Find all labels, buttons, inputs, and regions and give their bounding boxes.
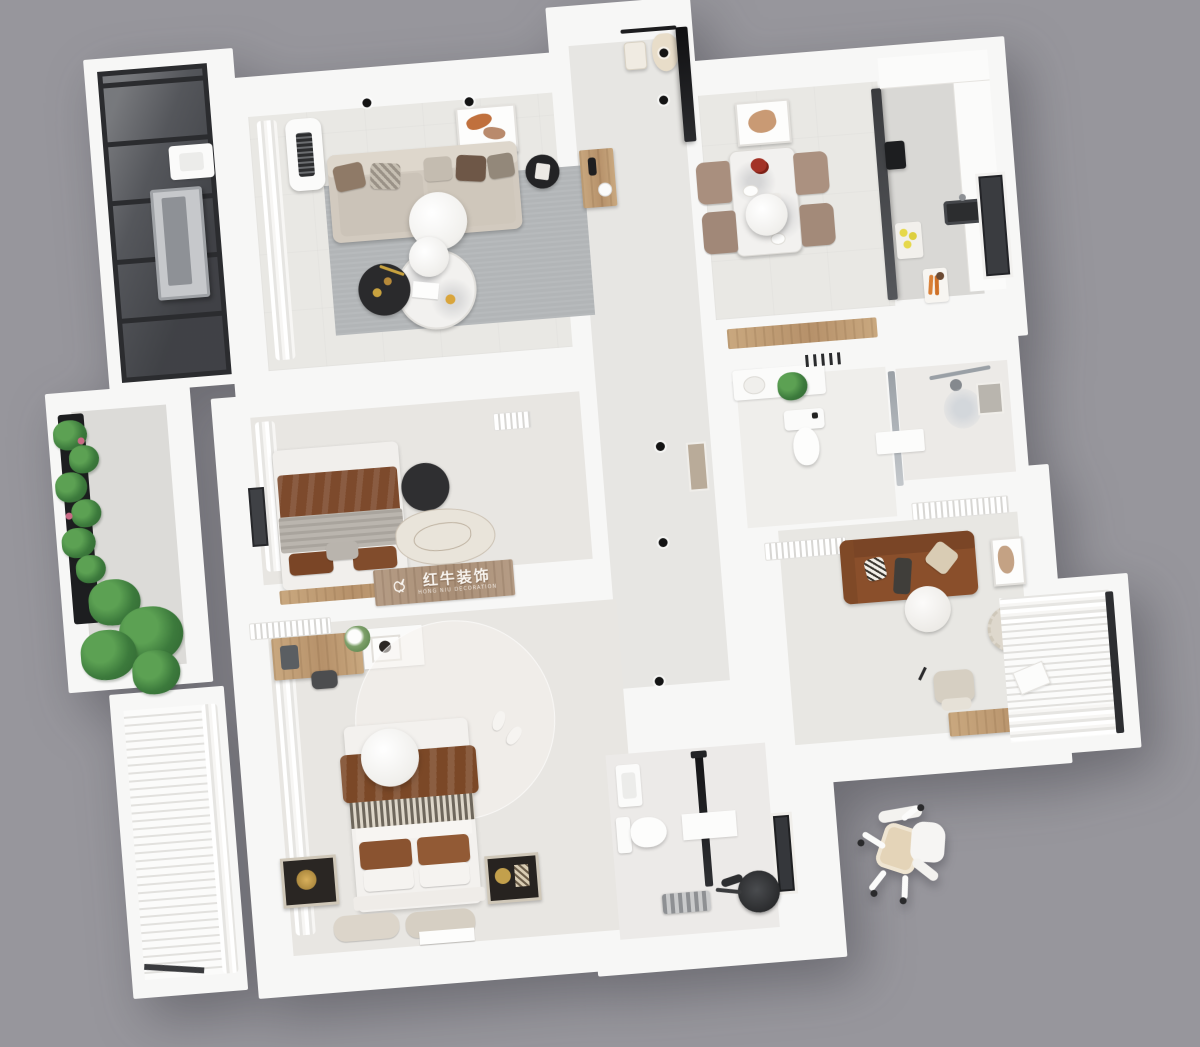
bath2-sink-basin [621,772,637,799]
bath2-mirror-panel [681,810,737,840]
desk-tablet [280,645,300,670]
art-gold-disc [296,869,318,891]
stray-chair-back [910,821,947,863]
black-table-decor2 [383,277,392,286]
stray-chair-leg [902,875,909,899]
dining-chair [799,202,836,247]
floor-cushion [333,911,401,942]
sofa-pillow-checker [370,163,401,190]
console-black-vase [588,157,597,176]
sofa-pillow-dark [455,155,486,182]
art-rug-line [412,520,472,553]
red-flowers [750,158,767,173]
study-throw [893,558,912,595]
lemon [899,228,908,237]
towel-basket [662,890,711,914]
kitchen-faucet [959,194,967,202]
chair-caster [857,838,866,847]
art-gold-dot [494,867,511,884]
bath2-sink [615,764,642,808]
kitchen-tray [895,221,924,259]
living-wall-art-shape2 [482,126,506,141]
scene-root: { "scene": { "type": "3d-apartment-floor… [0,0,1200,1000]
shower-column-head [690,750,707,758]
master-pillow-brown [417,834,471,866]
shower-step-panel [875,429,925,455]
stray-chair-leg [868,869,888,892]
toilet-button [812,412,818,418]
master-pillow-white [419,862,471,888]
master-desk-chair [311,670,338,690]
master-pillow-white [363,866,415,892]
lemon [903,240,912,249]
entry-console [579,148,618,209]
dining-chair [793,151,830,196]
vanity-basin [743,375,766,395]
drying-rack [150,186,211,301]
side-table-book [535,163,551,181]
leaning-art-frame-right [484,852,542,904]
console-white-vase [598,182,613,197]
black-table-decor1 [372,288,382,298]
sofa-pillow-taupe [486,152,516,180]
dining-chair [701,210,738,255]
office-chair-back [941,697,972,711]
bedroom2-pillow-brown [352,546,398,571]
shower-niche [976,381,1004,415]
floor-ac-unit [285,117,327,192]
study-art-shape [997,545,1015,574]
dining-wall-art [735,99,792,147]
study-pillow-pattern [863,556,888,582]
floorplan: 红牛装饰 HONG NIU DECORATION [0,0,1200,1047]
coffee-machine [884,140,906,170]
bedroom2-wall-ac [493,410,532,431]
carrot [928,275,933,295]
laundry-sink [168,143,215,180]
hand-bag [623,41,647,71]
dining-art-shape [746,107,779,136]
art-collage [514,864,530,887]
master-pillow-brown [359,838,413,870]
drying-rack-center [161,196,192,286]
laundry-sink-basin [179,152,204,172]
dining-chair [695,161,732,206]
wall-niche [686,441,710,491]
study-art-frame [990,536,1026,586]
cutting-board [923,267,950,303]
coffee-table-gold-decor [445,294,456,305]
bedroom2-pillow-gray [326,541,359,562]
onion [936,272,945,281]
lemon [909,232,918,241]
sofa-pillow-beige [423,156,453,182]
floor-ac-grille [296,132,315,177]
bull-icon [391,575,413,597]
bath2-toilet-tank [616,817,633,854]
coffee-table-magazine [412,281,439,299]
leaning-art-frame-left [280,854,340,908]
